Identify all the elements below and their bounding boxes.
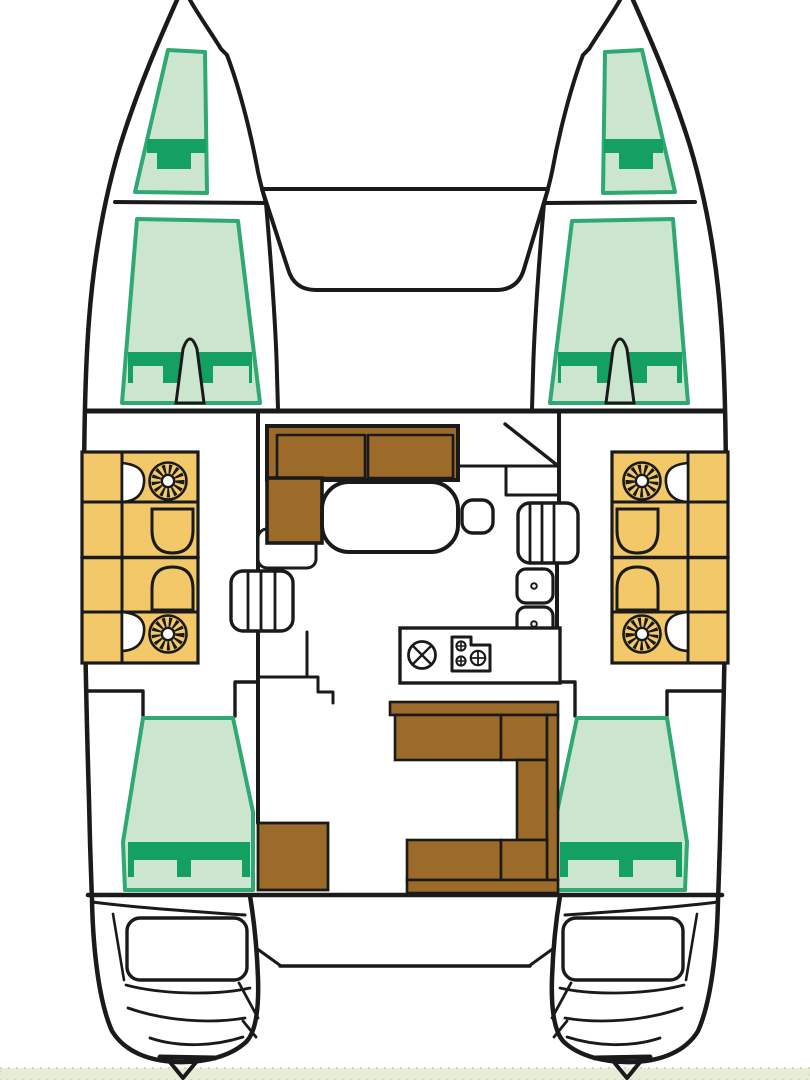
- galley-sink: [517, 569, 553, 603]
- floorplan-svg: [0, 0, 810, 1080]
- boat-floorplan: [0, 0, 810, 1080]
- saloon-table: [322, 482, 458, 552]
- foredeck: [262, 189, 548, 290]
- companionway-steps-starboard: [518, 503, 578, 563]
- stool: [462, 500, 493, 533]
- companionway-steps-port: [231, 571, 293, 631]
- cockpit-module: [258, 823, 328, 890]
- shore-strip: [0, 1068, 810, 1080]
